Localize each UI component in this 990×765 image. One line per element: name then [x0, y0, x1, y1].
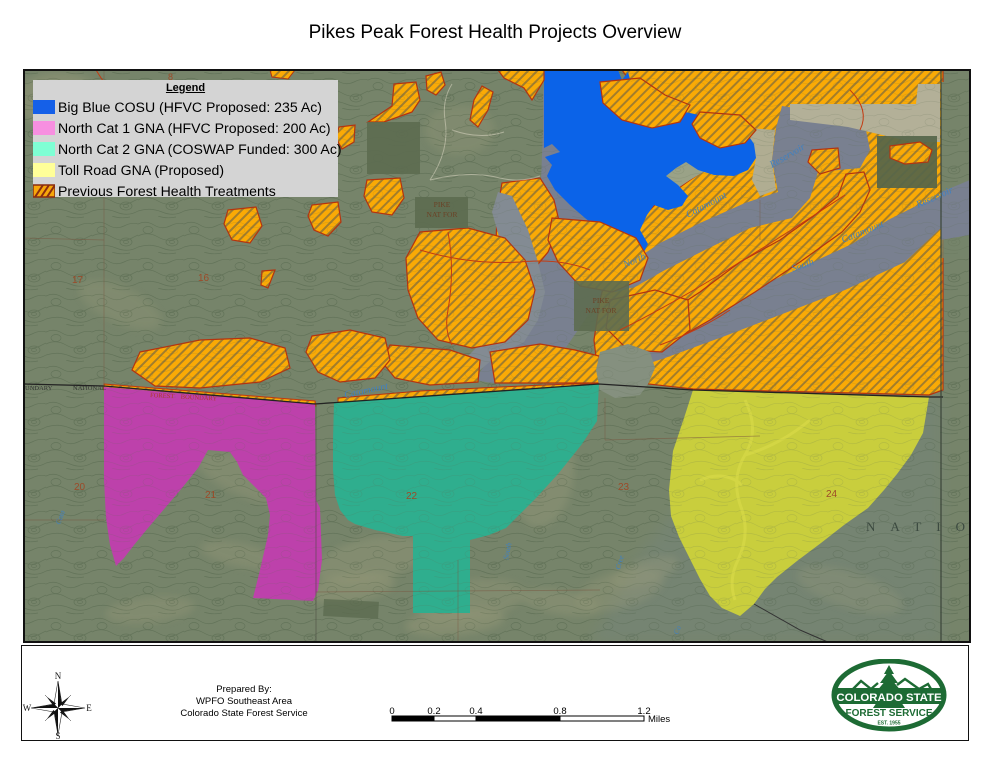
svg-text:22: 22: [406, 491, 418, 502]
svg-text:FOREST SERVICE: FOREST SERVICE: [845, 708, 932, 719]
svg-text:PIKE: PIKE: [434, 200, 451, 209]
svg-text:NAT FOR: NAT FOR: [586, 306, 617, 315]
svg-text:UNDARY: UNDARY: [25, 385, 53, 392]
svg-text:PIKE: PIKE: [593, 296, 610, 305]
svg-text:EST. 1955: EST. 1955: [877, 721, 900, 727]
svg-text:NAT FOR: NAT FOR: [427, 210, 458, 219]
svg-text:0.8: 0.8: [553, 706, 566, 717]
svg-text:N: N: [55, 671, 62, 681]
svg-text:0.4: 0.4: [469, 706, 482, 717]
svg-text:23: 23: [618, 482, 630, 493]
svg-text:W: W: [23, 703, 32, 713]
svg-text:COLORADO STATE: COLORADO STATE: [836, 692, 942, 704]
svg-text:21: 21: [205, 490, 217, 501]
svg-text:16: 16: [198, 273, 210, 284]
svg-text:NATIO: NATIO: [866, 519, 971, 534]
svg-text:S: S: [55, 731, 60, 741]
svg-text:17: 17: [72, 275, 84, 286]
svg-text:Miles: Miles: [648, 714, 670, 725]
svg-text:0: 0: [389, 706, 394, 717]
svg-text:0.2: 0.2: [427, 706, 440, 717]
svg-text:NATIONAL: NATIONAL: [73, 385, 106, 392]
svg-text:24: 24: [826, 489, 838, 500]
svg-text:20: 20: [74, 482, 86, 493]
svg-text:E: E: [86, 703, 92, 713]
